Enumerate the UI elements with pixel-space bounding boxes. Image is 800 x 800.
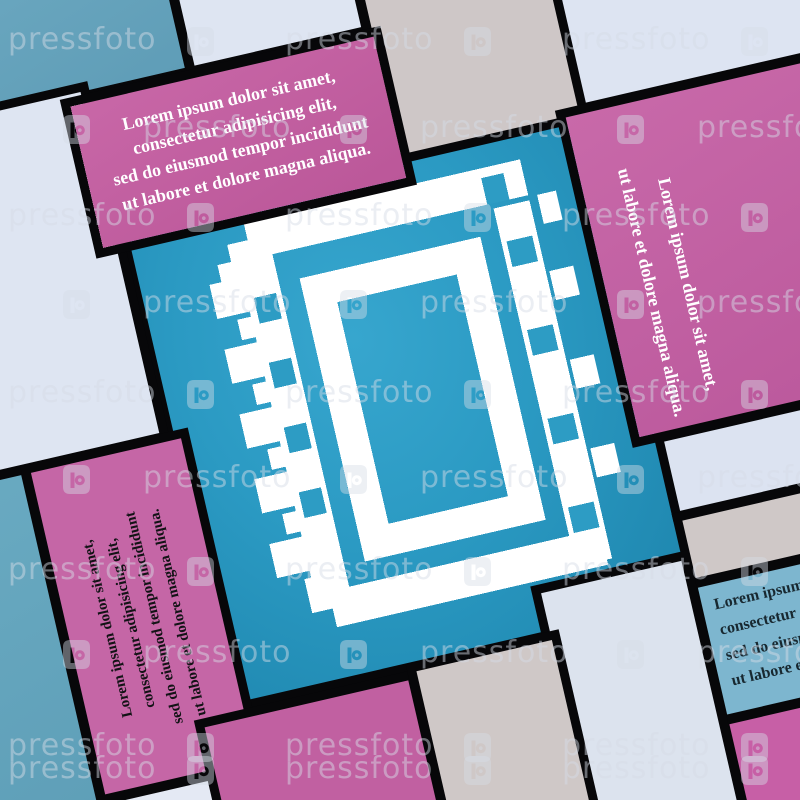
icon-pixel xyxy=(570,353,606,389)
icon-pixel xyxy=(537,188,573,224)
icon-pixel xyxy=(590,442,626,478)
stock-image-frame: Lorem ipsum dolor sit amet,ut labore et … xyxy=(0,0,800,800)
icon-pixel xyxy=(549,264,585,300)
rotated-mosaic-stage: Lorem ipsum dolor sit amet,ut labore et … xyxy=(0,0,800,800)
